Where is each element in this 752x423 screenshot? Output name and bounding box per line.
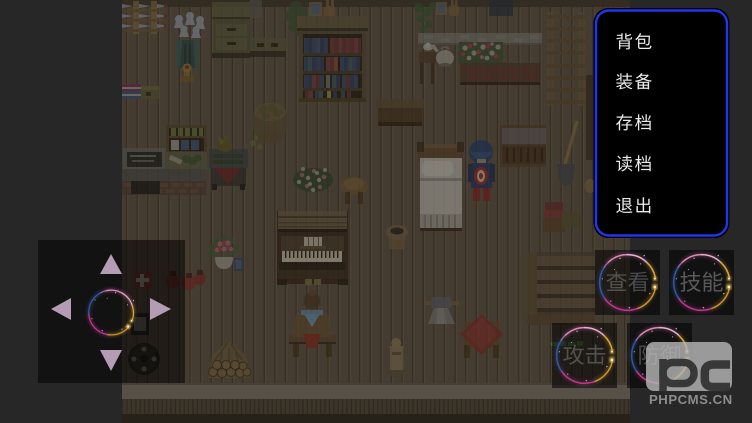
svg-text:PHPCMS.CN: PHPCMS.CN [649,392,733,407]
